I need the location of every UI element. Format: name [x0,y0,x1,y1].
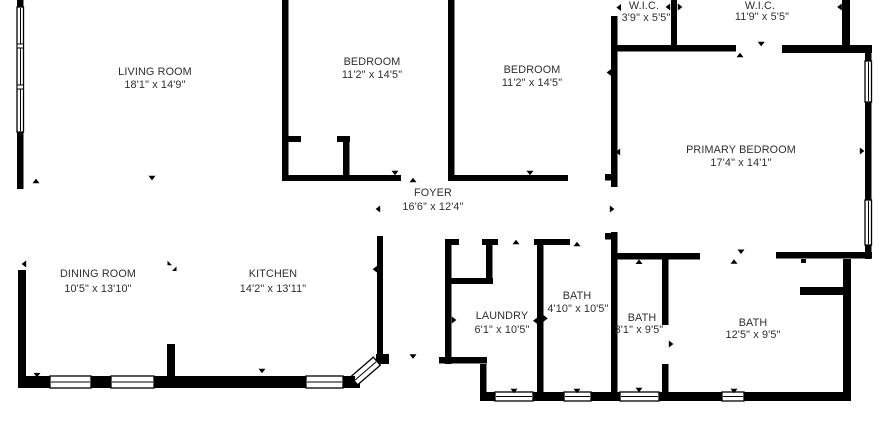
svg-text:11'2" x 14'5": 11'2" x 14'5" [502,77,562,89]
svg-text:6'1" x 10'5": 6'1" x 10'5" [474,324,529,336]
svg-text:17'4" x 14'1": 17'4" x 14'1" [710,157,771,169]
svg-text:BATH: BATH [739,317,768,329]
svg-text:DINING ROOM: DINING ROOM [60,268,136,280]
svg-text:LIVING ROOM: LIVING ROOM [118,66,192,78]
svg-text:BEDROOM: BEDROOM [504,64,561,76]
svg-text:KITCHEN: KITCHEN [249,268,297,280]
svg-text:4'10" x 10'5": 4'10" x 10'5" [547,303,608,315]
svg-text:3'9" x 5'5": 3'9" x 5'5" [622,12,671,24]
svg-text:PRIMARY BEDROOM: PRIMARY BEDROOM [686,144,796,156]
svg-text:11'9" x 5'5": 11'9" x 5'5" [735,11,789,23]
svg-text:16'6" x 12'4": 16'6" x 12'4" [402,201,463,213]
svg-text:3'1" x 9'5": 3'1" x 9'5" [615,324,664,336]
svg-text:14'2" x 13'11": 14'2" x 13'11" [240,283,307,295]
svg-text:BATH: BATH [563,290,592,302]
svg-text:12'5" x 9'5": 12'5" x 9'5" [725,329,780,341]
svg-text:11'2" x 14'5": 11'2" x 14'5" [342,69,402,81]
svg-text:18'1" x 14'9": 18'1" x 14'9" [124,79,185,91]
svg-text:10'5" x 13'10": 10'5" x 13'10" [64,283,131,295]
svg-text:W.I.C.: W.I.C. [629,0,659,12]
svg-text:BATH: BATH [628,312,657,324]
svg-text:LAUNDRY: LAUNDRY [476,310,528,322]
svg-text:BEDROOM: BEDROOM [344,56,401,68]
svg-text:FOYER: FOYER [414,187,452,199]
